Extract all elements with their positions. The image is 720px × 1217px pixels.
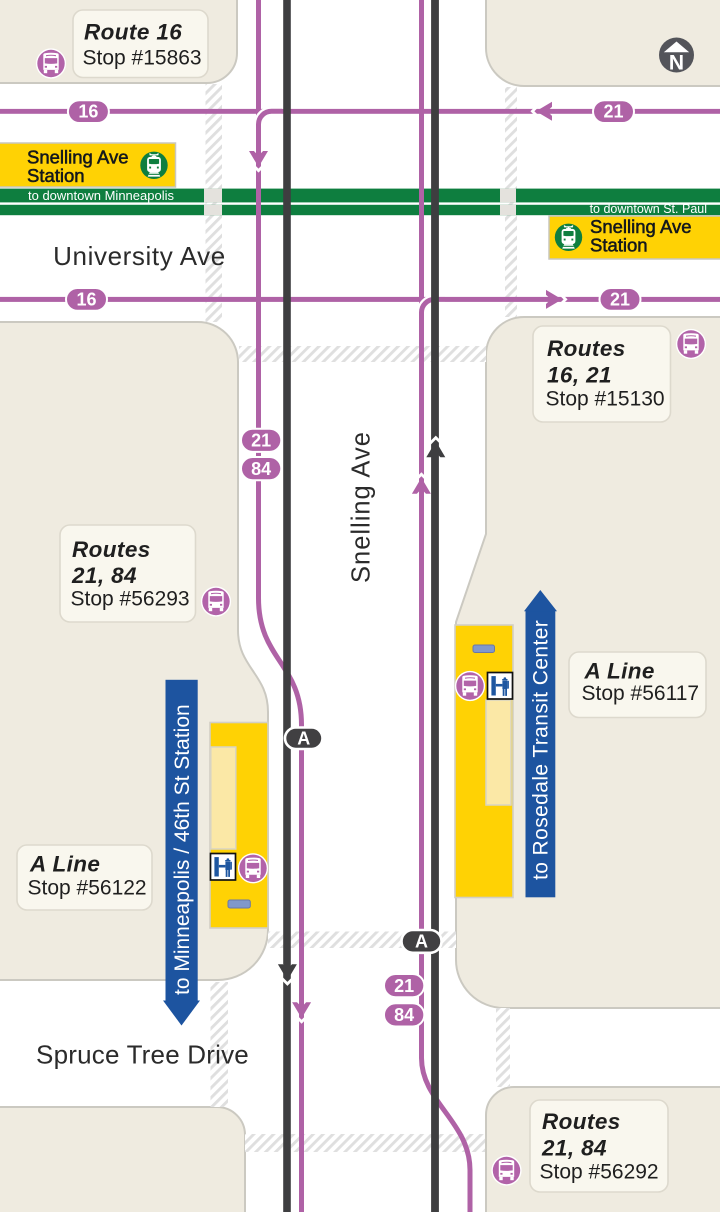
svg-text:Stop #56122: Stop #56122 [28,877,147,900]
svg-text:Stop #56292: Stop #56292 [540,1161,659,1184]
svg-text:A Line: A Line [584,659,655,684]
svg-text:Stop #15130: Stop #15130 [546,387,665,410]
svg-text:Stop #15863: Stop #15863 [83,47,202,70]
svg-text:16, 21: 16, 21 [547,363,612,388]
svg-text:University Ave: University Ave [53,241,226,271]
svg-text:A: A [415,932,428,952]
svg-text:A: A [297,729,310,749]
svg-text:21, 84: 21, 84 [541,1136,607,1161]
svg-text:16: 16 [78,102,98,122]
svg-text:21: 21 [394,976,414,996]
svg-text:Station: Station [590,235,648,256]
svg-text:Route 16: Route 16 [84,20,182,45]
svg-text:16: 16 [76,289,96,309]
svg-text:Snelling Ave: Snelling Ave [348,431,376,583]
svg-text:Station: Station [27,165,85,186]
svg-text:21, 84: 21, 84 [71,563,137,588]
svg-text:84: 84 [394,1005,414,1025]
svg-text:N: N [669,52,684,75]
svg-text:21: 21 [603,102,623,122]
svg-text:21: 21 [251,431,271,451]
svg-text:21: 21 [610,289,630,309]
svg-text:Stop #56117: Stop #56117 [582,682,700,705]
svg-text:to downtown St. Paul: to downtown St. Paul [590,202,707,216]
svg-text:Routes: Routes [72,537,151,562]
svg-text:to downtown Minneapolis: to downtown Minneapolis [28,188,174,203]
svg-text:84: 84 [251,459,271,479]
svg-text:to Minneapolis / 46th St Stati: to Minneapolis / 46th St Station [171,704,194,995]
svg-text:Spruce Tree Drive: Spruce Tree Drive [36,1040,249,1070]
svg-text:Routes: Routes [542,1109,621,1134]
svg-text:Routes: Routes [547,336,626,361]
svg-text:to Rosedale Transit Center: to Rosedale Transit Center [530,620,553,880]
svg-text:A Line: A Line [29,852,100,877]
svg-text:Stop #56293: Stop #56293 [71,588,190,611]
